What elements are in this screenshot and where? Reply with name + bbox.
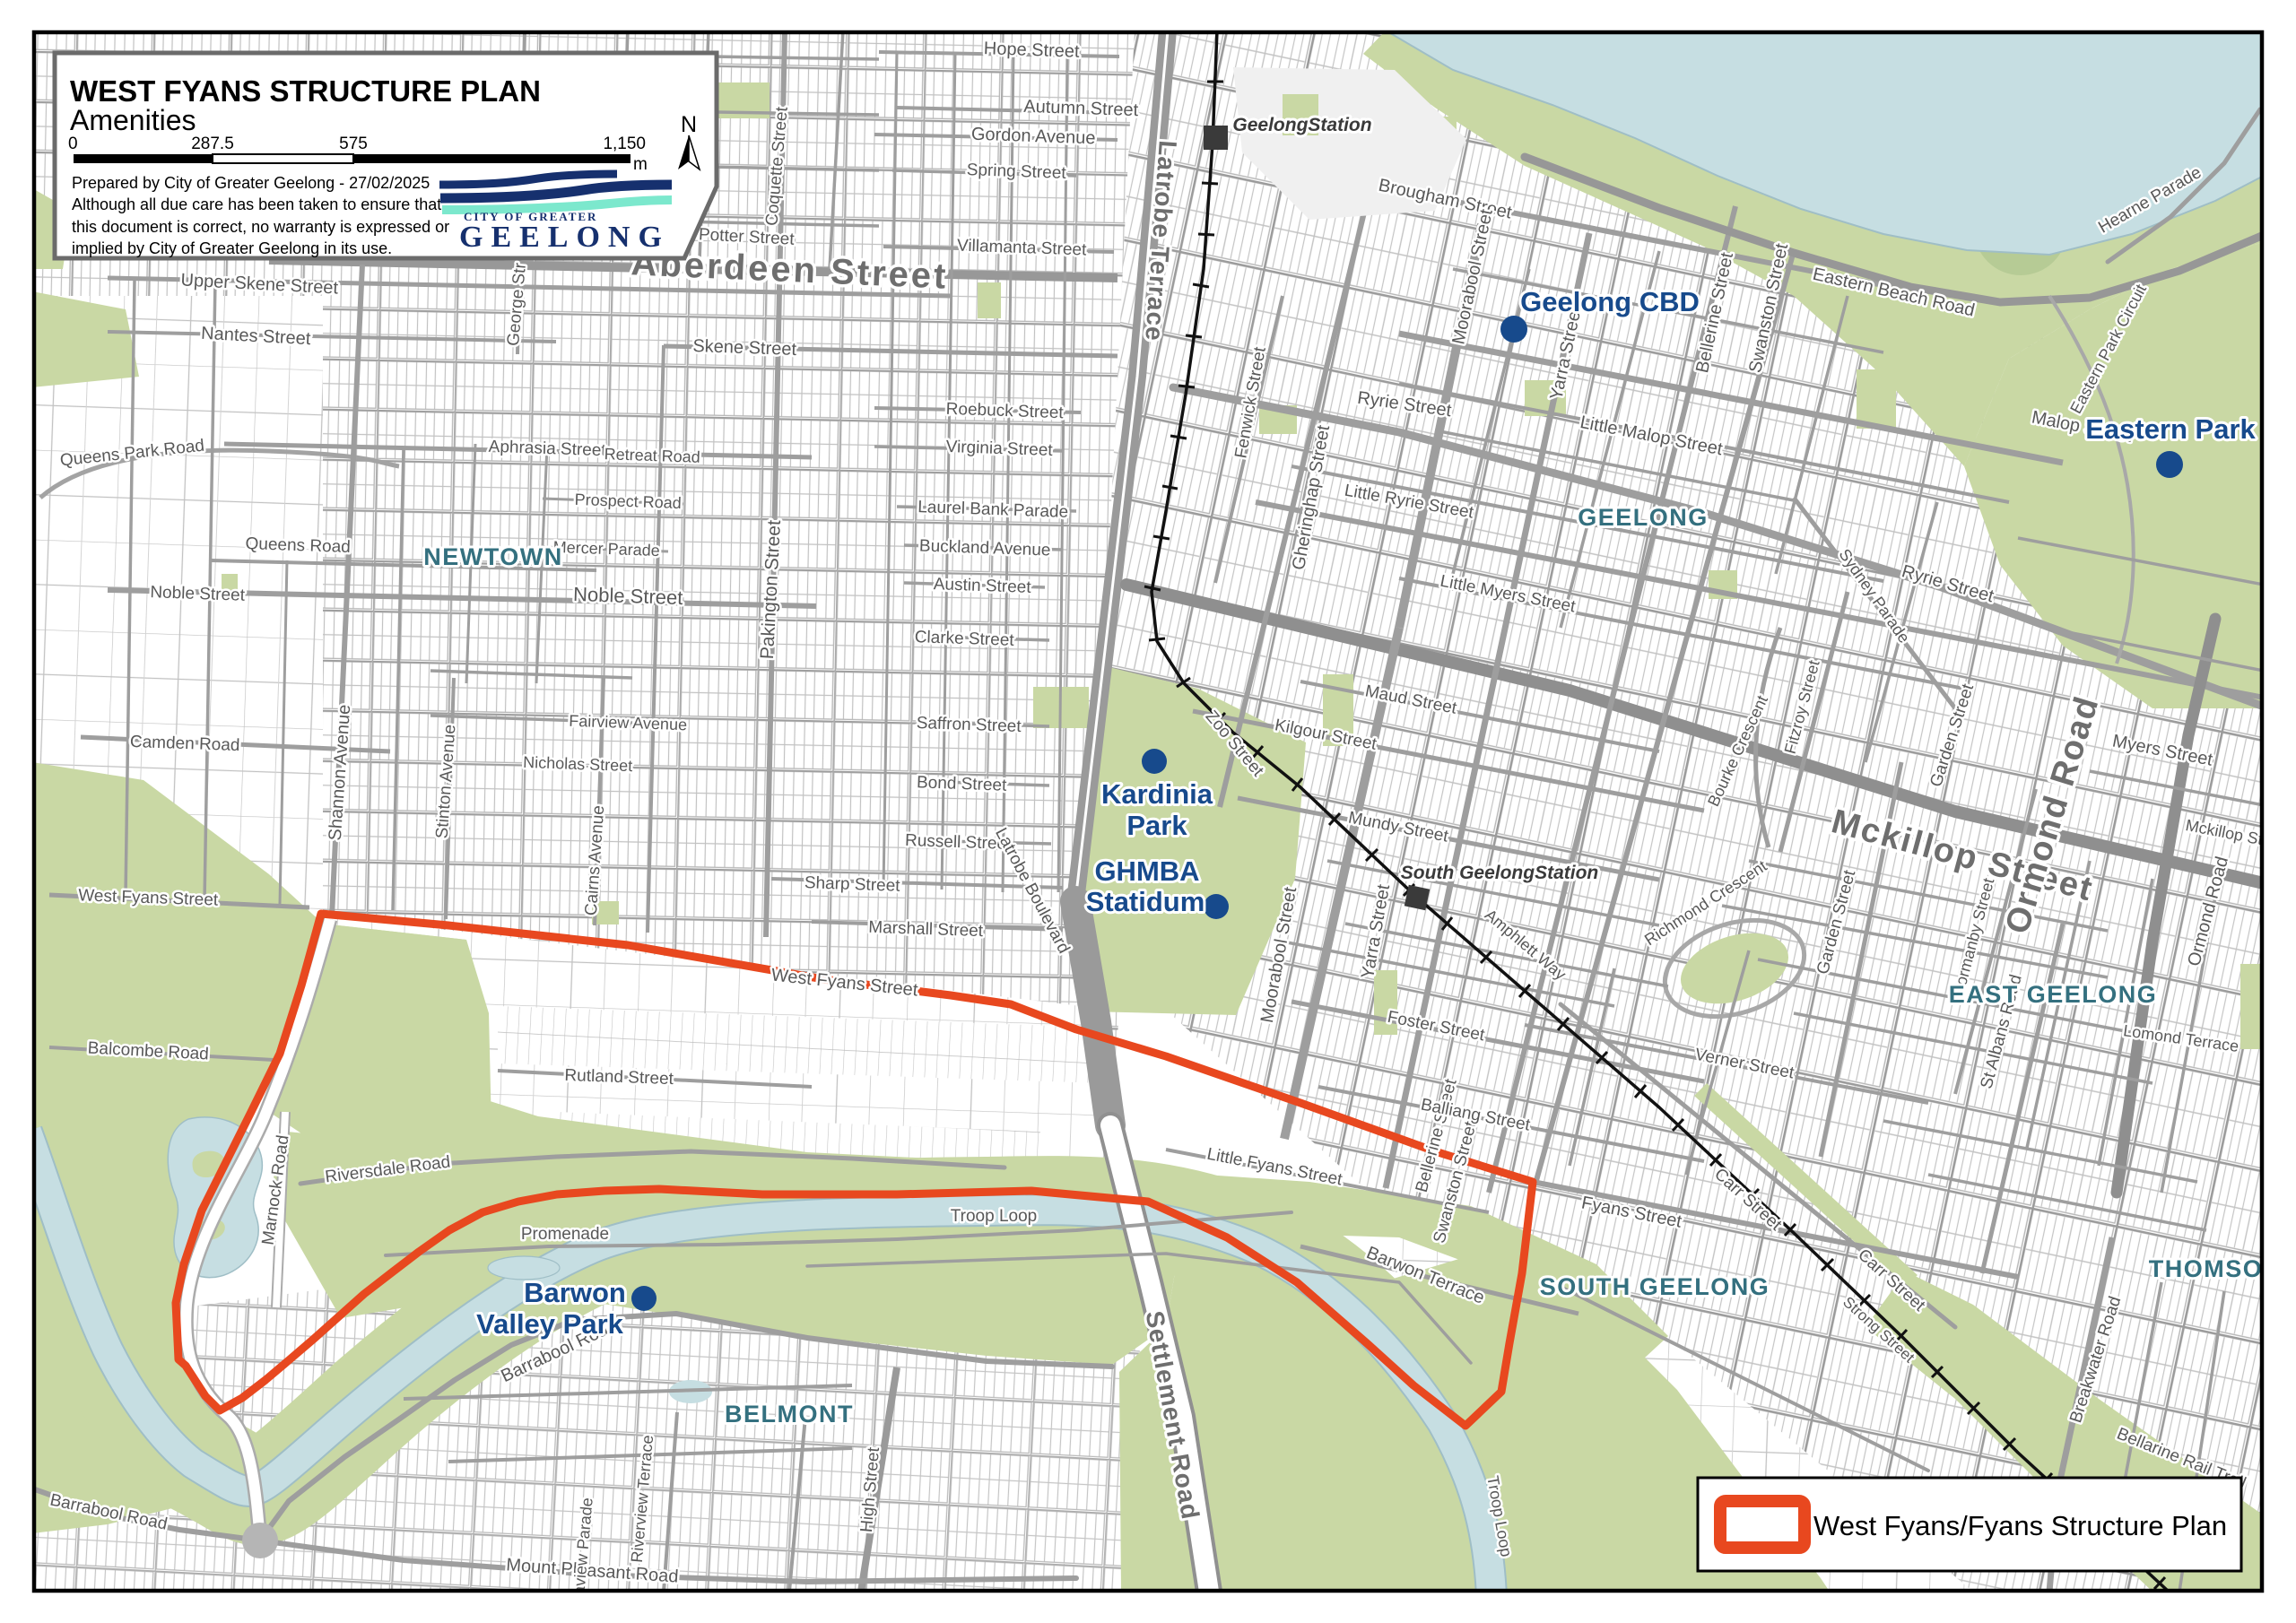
svg-text:Prospect Road: Prospect Road bbox=[574, 490, 682, 512]
svg-text:Statidum: Statidum bbox=[1086, 886, 1205, 917]
svg-text:South GeelongStation: South GeelongStation bbox=[1401, 863, 1599, 883]
svg-text:EAST GEELONG: EAST GEELONG bbox=[1949, 981, 2158, 1008]
svg-text:Park: Park bbox=[1126, 810, 1187, 841]
svg-text:Mercer Parade: Mercer Parade bbox=[552, 538, 660, 560]
svg-text:West Fyans/Fyans Structure Pla: West Fyans/Fyans Structure Plan bbox=[1813, 1510, 2227, 1541]
svg-text:SOUTH GEELONG: SOUTH GEELONG bbox=[1540, 1273, 1770, 1300]
svg-text:N: N bbox=[681, 112, 697, 137]
svg-text:Sharp Street: Sharp Street bbox=[804, 873, 901, 896]
svg-text:Kardinia: Kardinia bbox=[1101, 778, 1213, 810]
svg-text:Promenade: Promenade bbox=[521, 1225, 609, 1244]
svg-text:Austin Street: Austin Street bbox=[933, 575, 1031, 597]
svg-text:BELMONT: BELMONT bbox=[725, 1401, 854, 1428]
svg-text:Barwon: Barwon bbox=[524, 1277, 626, 1308]
svg-text:Although all due care has been: Although all due care has been taken to … bbox=[72, 195, 441, 213]
svg-text:0: 0 bbox=[68, 135, 78, 153]
svg-text:Amenities: Amenities bbox=[70, 104, 196, 136]
svg-text:Noble Street: Noble Street bbox=[150, 583, 246, 605]
svg-text:Eastern Park: Eastern Park bbox=[2085, 413, 2256, 445]
svg-text:GeelongStation: GeelongStation bbox=[1232, 115, 1371, 135]
svg-text:Autumn Street: Autumn Street bbox=[1023, 97, 1139, 120]
svg-text:GEELONG: GEELONG bbox=[1578, 504, 1709, 531]
svg-text:Spring Street: Spring Street bbox=[966, 161, 1066, 183]
svg-text:implied by City of Greater Gee: implied by City of Greater Geelong in it… bbox=[72, 239, 392, 257]
svg-text:GEELONG: GEELONG bbox=[459, 221, 670, 254]
svg-text:Queens Road: Queens Road bbox=[245, 534, 351, 557]
svg-text:Troop Loop: Troop Loop bbox=[951, 1207, 1037, 1226]
svg-text:NEWTOWN: NEWTOWN bbox=[423, 543, 562, 570]
svg-text:Hope Street: Hope Street bbox=[983, 39, 1080, 62]
svg-text:Geelong CBD: Geelong CBD bbox=[1520, 286, 1700, 317]
svg-text:Clarke Street: Clarke Street bbox=[914, 628, 1014, 650]
svg-text:Marshall Street: Marshall Street bbox=[868, 918, 984, 941]
svg-text:this document is correct, no w: this document is correct, no warranty is… bbox=[72, 218, 449, 236]
svg-text:Rutland Street: Rutland Street bbox=[564, 1066, 674, 1089]
svg-text:m: m bbox=[633, 155, 648, 174]
svg-text:Prepared by City of Greater Ge: Prepared by City of Greater Geelong - 27… bbox=[72, 174, 430, 192]
svg-text:Bond Street: Bond Street bbox=[917, 773, 1008, 795]
svg-text:287.5: 287.5 bbox=[191, 135, 234, 153]
svg-text:Nicholas Street: Nicholas Street bbox=[523, 753, 633, 775]
svg-text:Virginia Street: Virginia Street bbox=[945, 438, 1053, 460]
svg-text:GHMBA: GHMBA bbox=[1094, 855, 1199, 887]
svg-text:Camden Road: Camden Road bbox=[130, 733, 240, 755]
svg-text:575: 575 bbox=[339, 135, 368, 153]
svg-text:Noble Street: Noble Street bbox=[573, 583, 683, 609]
svg-text:WEST FYANS STRUCTURE PLAN: WEST FYANS STRUCTURE PLAN bbox=[70, 74, 541, 108]
svg-text:Valley Park: Valley Park bbox=[476, 1308, 624, 1340]
svg-text:1,150: 1,150 bbox=[603, 135, 646, 153]
svg-text:Skene Street: Skene Street bbox=[692, 336, 797, 360]
svg-text:Saffron Street: Saffron Street bbox=[916, 714, 1022, 736]
svg-text:Retreat Road: Retreat Road bbox=[604, 445, 700, 466]
